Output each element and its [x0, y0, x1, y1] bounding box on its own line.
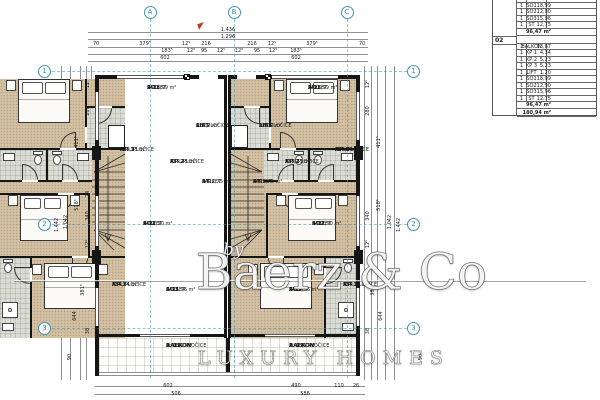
room-detail: PARKET — [147, 86, 166, 92]
dim-label: 12⁵ — [365, 240, 371, 248]
axis-grid-line — [52, 71, 407, 72]
nightstand — [314, 264, 324, 275]
dim-label: 644 — [72, 311, 78, 321]
dim-label: 38 — [365, 328, 371, 334]
axis-grid-line — [234, 19, 235, 378]
pillow — [71, 266, 92, 278]
dim-label: 1.042 — [387, 215, 393, 229]
dim-label: 216 — [201, 41, 211, 47]
area-table-subtotal-row: 96,47 m² — [517, 29, 596, 36]
balcony-sliding-door — [265, 334, 315, 337]
lift-door-opening — [85, 127, 87, 143]
toilet-bowl — [53, 155, 61, 165]
unit-left-interior — [0, 79, 125, 338]
door-opening — [280, 148, 296, 150]
area-table-section-divider — [493, 44, 516, 45]
dim-label: 26 — [353, 383, 359, 389]
axis-circle-3: 3 — [38, 322, 51, 335]
survey-marker-icon — [265, 74, 271, 80]
blanket-line — [44, 287, 96, 288]
area-table-section-column: 02 — [493, 0, 517, 115]
dim-label: 70 — [359, 41, 365, 47]
balcony-railing — [95, 372, 360, 373]
dim-label: 12⁵ — [182, 41, 190, 47]
dim-line — [371, 66, 372, 380]
door-opening — [60, 148, 76, 150]
blanket-line — [18, 99, 70, 100]
dim-label: 602 — [291, 55, 301, 61]
dim-label: 379⁵ — [139, 41, 151, 47]
dim-label: 518⁵ — [376, 199, 382, 211]
window — [356, 92, 360, 140]
nightstand — [6, 80, 16, 91]
wall-pier — [354, 250, 363, 264]
nightstand — [274, 80, 284, 91]
dim-label: 1.442 — [54, 218, 60, 232]
dim-label: 95 — [201, 48, 207, 54]
axis-grid-line — [52, 328, 407, 329]
room-detail: PARKET — [202, 180, 221, 186]
blanket-line — [286, 99, 338, 100]
axis-circle-2: 2 — [407, 218, 420, 231]
dim-label: 12⁵ — [268, 41, 276, 47]
floorplan-canvas: by Baerz & Co LUXURY HOMES — [0, 0, 600, 400]
dim-label: 280 — [365, 106, 371, 116]
dim-label: 602 — [163, 383, 173, 389]
wall-pier — [92, 250, 101, 264]
axis-grid-line — [150, 19, 151, 378]
dim-label: 12⁵ — [235, 48, 243, 54]
balcony-railing — [95, 375, 360, 376]
nightstand — [98, 264, 108, 275]
pillow — [264, 266, 285, 278]
sink — [342, 323, 354, 331]
dim-label: 381⁵ — [80, 284, 86, 296]
shower-drain — [8, 308, 12, 312]
dim-line — [394, 66, 395, 380]
room-detail: KER.PLOČICE — [259, 124, 292, 130]
red-annotation-arrow-icon — [197, 22, 206, 30]
door-opening — [62, 180, 78, 182]
pillow — [44, 198, 61, 209]
axis-grid-line — [347, 19, 348, 378]
unit-right-interior — [231, 79, 356, 338]
axis-circle-C: C — [341, 6, 354, 19]
area-table-section-divider — [493, 36, 516, 37]
dim-label: 110 — [334, 383, 344, 389]
wall-segment — [85, 148, 125, 150]
dim-label: 1.442 — [396, 218, 402, 232]
nightstand — [276, 195, 286, 206]
room-detail: A: 13,9 m² — [166, 344, 192, 350]
exterior-wall-bottom — [95, 334, 140, 337]
nightstand — [32, 264, 42, 275]
room-detail: PARKET — [289, 288, 308, 294]
room-detail: A: 13,9 m² — [289, 344, 315, 350]
nightstand — [248, 264, 258, 275]
room-detail: PARKET — [308, 86, 327, 92]
room-detail: KER. PLOČICE — [335, 148, 369, 154]
pillow — [48, 266, 69, 278]
entrance-opening — [199, 75, 218, 79]
room-detail: KER. PLOČICE — [285, 160, 319, 166]
nightstand — [340, 80, 350, 91]
pillow — [315, 198, 332, 209]
dim-line — [95, 394, 365, 395]
dim-line — [88, 47, 368, 48]
window — [356, 288, 360, 326]
wall-segment — [231, 148, 271, 150]
axis-circle-B: B — [228, 6, 241, 19]
balcony-divider-wall — [226, 338, 230, 372]
dim-label: 12⁵ — [187, 48, 195, 54]
toilet-bowl — [34, 155, 42, 165]
dim-label: 411⁵ — [74, 136, 80, 148]
door-opening — [22, 180, 38, 182]
area-table-section-header-row — [517, 36, 596, 44]
dim-label: 12⁵ — [217, 48, 225, 54]
window — [272, 75, 338, 79]
room-detail: PARKET — [312, 222, 331, 228]
dim-label: 586 — [300, 391, 310, 397]
dim-label: 411⁵ — [376, 136, 382, 148]
dim-line — [88, 61, 368, 62]
dim-label: 24 — [85, 191, 91, 197]
dim-label: 12⁵ — [365, 80, 371, 88]
dim-label: 280 — [85, 106, 91, 116]
sink — [267, 153, 279, 161]
axis-grid-line — [52, 224, 407, 225]
dim-label: 12⁵ — [85, 80, 91, 88]
wall-segment — [0, 180, 92, 182]
room-detail: KER. PLOČICE — [343, 283, 377, 289]
dim-label: 95 — [254, 48, 260, 54]
dim-label: 506 — [171, 391, 181, 397]
entrance-opening — [237, 75, 256, 79]
dim-label: 70 — [93, 41, 99, 47]
exterior-wall-bottom — [231, 334, 265, 337]
dim-label: 1.296 — [221, 34, 235, 40]
survey-marker-icon — [184, 74, 190, 80]
dim-label: 490 — [291, 383, 301, 389]
room-detail: PARKET — [143, 222, 162, 228]
dim-label: 602 — [160, 55, 170, 61]
dim-label: 1.436 — [221, 27, 235, 33]
sink — [2, 323, 14, 331]
dim-label: 90 — [67, 354, 73, 360]
pillow — [287, 266, 308, 278]
dim-label: 12⁵ — [269, 48, 277, 54]
wall-segment — [0, 256, 125, 258]
room-detail: KER. PLOČICE — [120, 148, 154, 154]
wall-segment — [231, 256, 356, 258]
pillow — [22, 82, 43, 94]
axis-circle-1: 1 — [407, 65, 420, 78]
nightstand — [8, 195, 18, 206]
lift-shaft — [108, 125, 125, 148]
blanket-line — [288, 219, 336, 220]
wall-pier — [92, 146, 101, 160]
dim-label: 340 — [85, 211, 91, 221]
staircase — [231, 150, 264, 250]
dim-label: 340 — [365, 211, 371, 221]
party-wall-joint — [227, 75, 228, 338]
dim-label: 12⁵ — [85, 240, 91, 248]
area-table-cell: 96,47 m² — [517, 102, 553, 109]
pillow — [295, 198, 312, 209]
dim-label: 216 — [247, 41, 257, 47]
window — [95, 288, 99, 326]
sink — [3, 153, 15, 161]
axis-circle-2: 2 — [38, 218, 51, 231]
room-detail: PARKET — [166, 288, 185, 294]
sink — [77, 153, 89, 161]
area-table: 021LIFT1,201SO118,991SO212,901SO315,961S… — [492, 0, 597, 116]
wall-segment — [46, 150, 48, 180]
dim-label: 518⁵ — [74, 199, 80, 211]
exterior-wall-bottom — [315, 334, 360, 337]
dim-label: 644 — [378, 311, 384, 321]
area-table-cell: 180,94 m² — [517, 109, 553, 117]
window — [356, 196, 360, 246]
dim-line — [95, 386, 365, 387]
balcony-sliding-door — [140, 334, 190, 337]
dim-label: 38 — [85, 328, 91, 334]
room-detail: KER. PLOČICE — [112, 283, 146, 289]
dim-label: 90 — [418, 354, 424, 360]
dim-line — [88, 54, 368, 55]
window — [95, 92, 99, 140]
window — [95, 196, 99, 246]
room-detail: KER. PLOČICE — [170, 160, 204, 166]
dim-label: 183⁵ — [161, 48, 173, 54]
dim-line — [377, 66, 378, 380]
door-opening — [318, 180, 334, 182]
axis-circle-1: 1 — [38, 65, 51, 78]
toilet-bowl — [4, 263, 12, 273]
dim-label: 1.042 — [63, 215, 69, 229]
pillow — [45, 82, 66, 94]
dim-line — [385, 66, 386, 380]
dim-label: 379⁵ — [306, 41, 318, 47]
nightstand — [72, 80, 82, 91]
dim-label: 183⁵ — [290, 48, 302, 54]
toilet-bowl — [344, 263, 352, 273]
balcony-side-wall — [356, 338, 360, 376]
balcony-side-wall — [95, 338, 99, 376]
room-detail: KER.PLOČICE — [196, 124, 229, 130]
room-detail: PARKET — [253, 180, 272, 186]
area-table-grand-total-row: 180,94 m² — [517, 109, 596, 117]
area-table-subtotal-row: 96,47 m² — [517, 102, 596, 109]
area-table-cell: 96,47 m² — [517, 29, 553, 36]
axis-circle-3: 3 — [407, 322, 420, 335]
pillow — [24, 198, 41, 209]
axis-circle-A: A — [144, 6, 157, 19]
